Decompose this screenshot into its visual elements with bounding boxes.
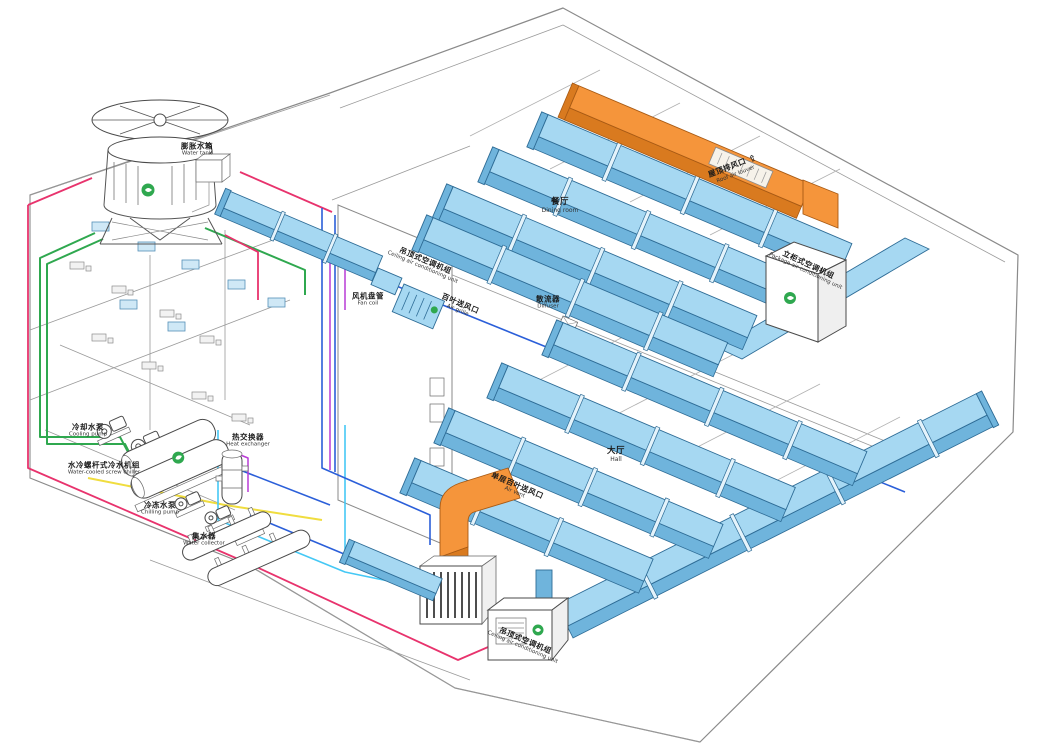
label-water-tank-en: Water tank xyxy=(181,151,213,157)
label-water-tank-zh: 膨胀水箱 xyxy=(181,143,213,151)
label-chiller: 水冷螺杆式冷水机组 Water-cooled screw chiller xyxy=(68,462,140,477)
label-chilling-pump: 冷冻水泵 Chilling pump xyxy=(141,502,179,517)
label-water-tank: 膨胀水箱 Water tank xyxy=(181,143,213,158)
isometric-hvac-diagram: 膨胀水箱 Water tank 冷却水泵 Cooling pump 水冷螺杆式冷… xyxy=(0,0,1037,748)
label-diffuser: 散流器 Diffuser xyxy=(536,296,560,311)
label-hall: 大厅 Hall xyxy=(607,447,625,463)
label-fan-coil: 风机盘管 Fan coil xyxy=(352,293,384,308)
label-cooling-pump: 冷却水泵 Cooling pump xyxy=(69,424,107,439)
label-heat-exchanger: 热交换器 Heat exchanger xyxy=(226,434,270,449)
office-desks xyxy=(70,262,253,423)
label-water-collector: 集水器 Water collector xyxy=(183,533,225,548)
label-dining-room: 餐厅 Dining room xyxy=(542,198,579,214)
exhaust-elbow xyxy=(803,180,838,228)
